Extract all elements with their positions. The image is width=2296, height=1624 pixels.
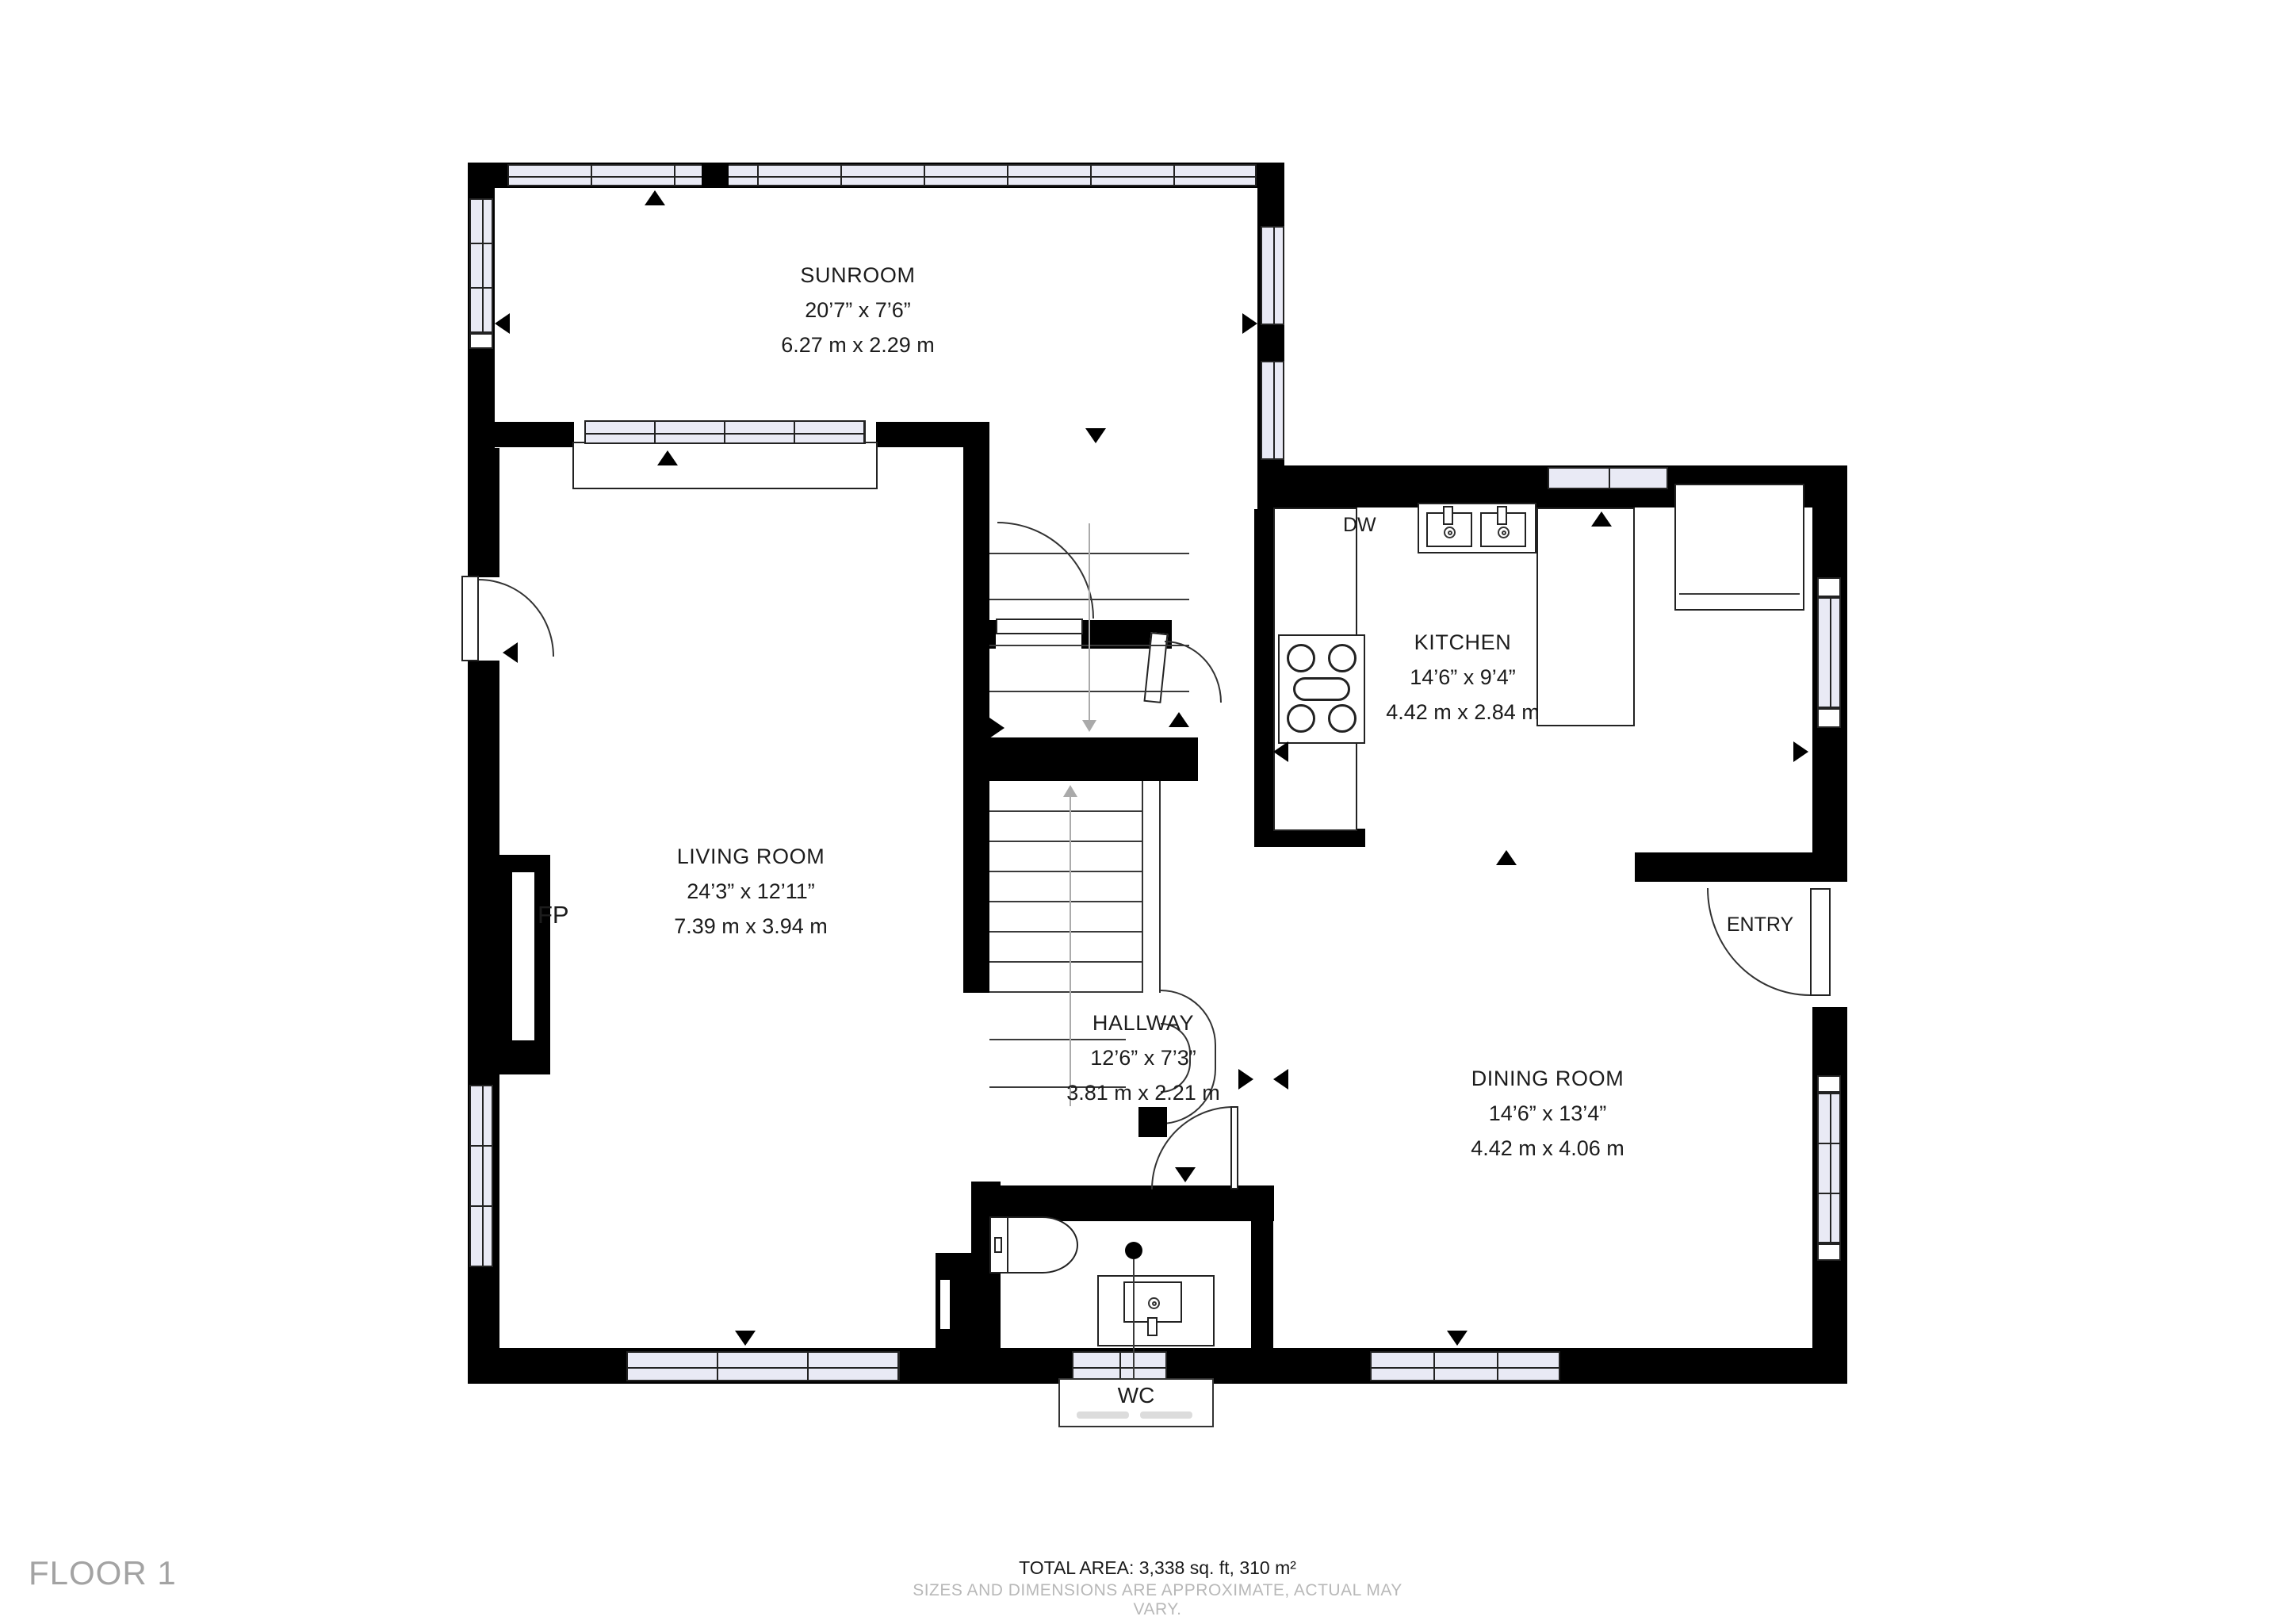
fireplace-label: FP (538, 901, 569, 929)
stair-lower-arrow-head (1063, 785, 1077, 797)
total-area-label: TOTAL AREA: 3,338 sq. ft, 310 m² (904, 1557, 1411, 1579)
living-left-door-leaf (461, 576, 479, 661)
entry-label: ENTRY (1712, 913, 1808, 936)
bay-window (584, 420, 866, 444)
sunroom-imperial: 20’7” x 7’6” (691, 293, 1024, 327)
stair-newel-post (1138, 1107, 1167, 1137)
fridge (1674, 484, 1804, 611)
sink-faucet-left (1443, 506, 1453, 525)
stair-upper-arrow-line (1089, 523, 1090, 720)
hallway-name: HALLWAY (977, 1005, 1310, 1040)
wall-stair-left (963, 422, 989, 993)
wall-kitchen-dining-divider (1635, 852, 1847, 882)
marker-stair-wall (989, 718, 1004, 738)
stair-lower-tread (989, 901, 1142, 902)
room-label-sunroom: SUNROOM 20’7” x 7’6” 6.27 m x 2.29 m (691, 258, 1024, 362)
marker-wc-door (1175, 1167, 1196, 1182)
kitchen-name: KITCHEN (1296, 625, 1629, 660)
kitchen-door-swing (1165, 641, 1222, 703)
dining-right-window (1817, 1093, 1841, 1243)
kitchen-metric: 4.42 m x 2.84 m (1296, 695, 1629, 730)
dining-bottom-window (1370, 1351, 1560, 1381)
floor-plan: FP ENTRY (0, 0, 2296, 1624)
dishwasher-label: DW (1343, 514, 1376, 537)
dining-name: DINING ROOM (1381, 1061, 1714, 1096)
fridge-inner-line (1679, 593, 1800, 595)
entry-door-leaf (1810, 888, 1831, 996)
dining-right-window-cap-bottom (1817, 1243, 1841, 1261)
kitchen-imperial: 14’6” x 9’4” (1296, 660, 1629, 695)
stair-lower-tread (989, 841, 1142, 842)
room-label-dining: DINING ROOM 14’6” x 13’4” 4.42 m x 4.06 … (1381, 1061, 1714, 1166)
stair-lower-tread (989, 871, 1142, 872)
living-metric: 7.39 m x 3.94 m (584, 909, 917, 944)
marker-living-bottom-window (735, 1331, 756, 1346)
stair-upper-arrow-head (1082, 720, 1096, 732)
kitchen-top-window (1548, 467, 1668, 489)
hallway-metric: 3.81 m x 2.21 m (977, 1075, 1310, 1110)
wall-wc-east (1251, 1185, 1273, 1352)
sunroom-right-window-upper (1261, 226, 1284, 325)
kitchen-right-window-cap-bottom (1817, 708, 1841, 728)
fireplace-niche (512, 872, 534, 1040)
sink-drain-right (1498, 527, 1510, 538)
wall-living-top-left (468, 422, 574, 447)
wc-west-slit (940, 1280, 950, 1329)
wall-kitchen-west (1254, 509, 1273, 847)
marker-kitchen-window (1591, 511, 1612, 527)
living-name: LIVING ROOM (584, 839, 917, 874)
wc-sink-drain (1148, 1297, 1160, 1309)
dining-metric: 4.42 m x 4.06 m (1381, 1131, 1714, 1166)
floor-label: FLOOR 1 (29, 1554, 177, 1592)
bay-window-seat (572, 442, 878, 489)
marker-kitchen-west (1273, 741, 1288, 762)
marker-kitchen-east (1793, 741, 1808, 762)
marker-sunroom-passage (1085, 428, 1106, 443)
stair-lower-tread (989, 961, 1142, 963)
marker-sunroom-top (645, 190, 665, 205)
wc-leader-line (1133, 1259, 1135, 1380)
marker-living-left (503, 642, 518, 663)
living-bottom-window (626, 1351, 900, 1381)
stair-lower-tread (989, 810, 1142, 812)
marker-dining-bottom-window (1447, 1331, 1468, 1346)
kitchen-right-window (1817, 597, 1841, 708)
room-label-living: LIVING ROOM 24’3” x 12’11” 7.39 m x 3.94… (584, 839, 917, 944)
marker-sunroom-right (1242, 313, 1257, 334)
sunroom-right-window-lower (1261, 361, 1284, 460)
sunroom-top-window (507, 164, 1257, 186)
sunroom-left-window (469, 198, 493, 333)
toilet-bowl (1007, 1216, 1078, 1274)
marker-sunroom-left (495, 313, 510, 334)
dining-imperial: 14’6” x 13’4” (1381, 1096, 1714, 1131)
stair-lower-tread (989, 931, 1142, 933)
dining-right-window-cap-top (1817, 1075, 1841, 1093)
sink-faucet-right (1497, 506, 1507, 525)
wc-leader-dot (1125, 1242, 1142, 1259)
wc-bottom-window (1072, 1351, 1167, 1381)
wc-callout: WC (1058, 1378, 1214, 1427)
room-label-hallway: HALLWAY 12’6” x 7’3” 3.81 m x 2.21 m (977, 1005, 1310, 1110)
stair-railing (1142, 781, 1161, 993)
vestibule-door-leaf (996, 619, 1083, 634)
toilet-tank-button (994, 1237, 1002, 1253)
wc-label: WC (1060, 1383, 1212, 1408)
vestibule-door-swing (997, 522, 1094, 619)
sunroom-metric: 6.27 m x 2.29 m (691, 327, 1024, 362)
wc-callout-faint-text (1140, 1411, 1192, 1419)
sunroom-name: SUNROOM (691, 258, 1024, 293)
marker-corridor (1169, 712, 1189, 727)
wall-kitchen-south-stub (1254, 829, 1365, 847)
hallway-imperial: 12’6” x 7’3” (977, 1040, 1310, 1075)
living-left-window (469, 1085, 493, 1267)
sunroom-top-wall-chunk (702, 163, 729, 188)
disclaimer-label: SIZES AND DIMENSIONS ARE APPROXIMATE, AC… (904, 1581, 1411, 1619)
marker-bay-window (657, 450, 678, 465)
wall-stair-landing (963, 737, 1198, 781)
living-imperial: 24’3” x 12’11” (584, 874, 917, 909)
kitchen-right-window-cap-top (1817, 577, 1841, 597)
wc-door-leaf (1230, 1106, 1238, 1189)
sink-drain-left (1444, 527, 1456, 538)
room-label-kitchen: KITCHEN 14’6” x 9’4” 4.42 m x 2.84 m (1296, 625, 1629, 730)
wc-sink-faucet (1147, 1317, 1158, 1336)
sunroom-left-window-cap (469, 333, 493, 349)
entry-door-swing (1707, 888, 1810, 996)
marker-dining-top (1496, 850, 1517, 865)
wc-callout-faint-text (1077, 1411, 1129, 1419)
stair-lower-tread (989, 991, 1142, 993)
